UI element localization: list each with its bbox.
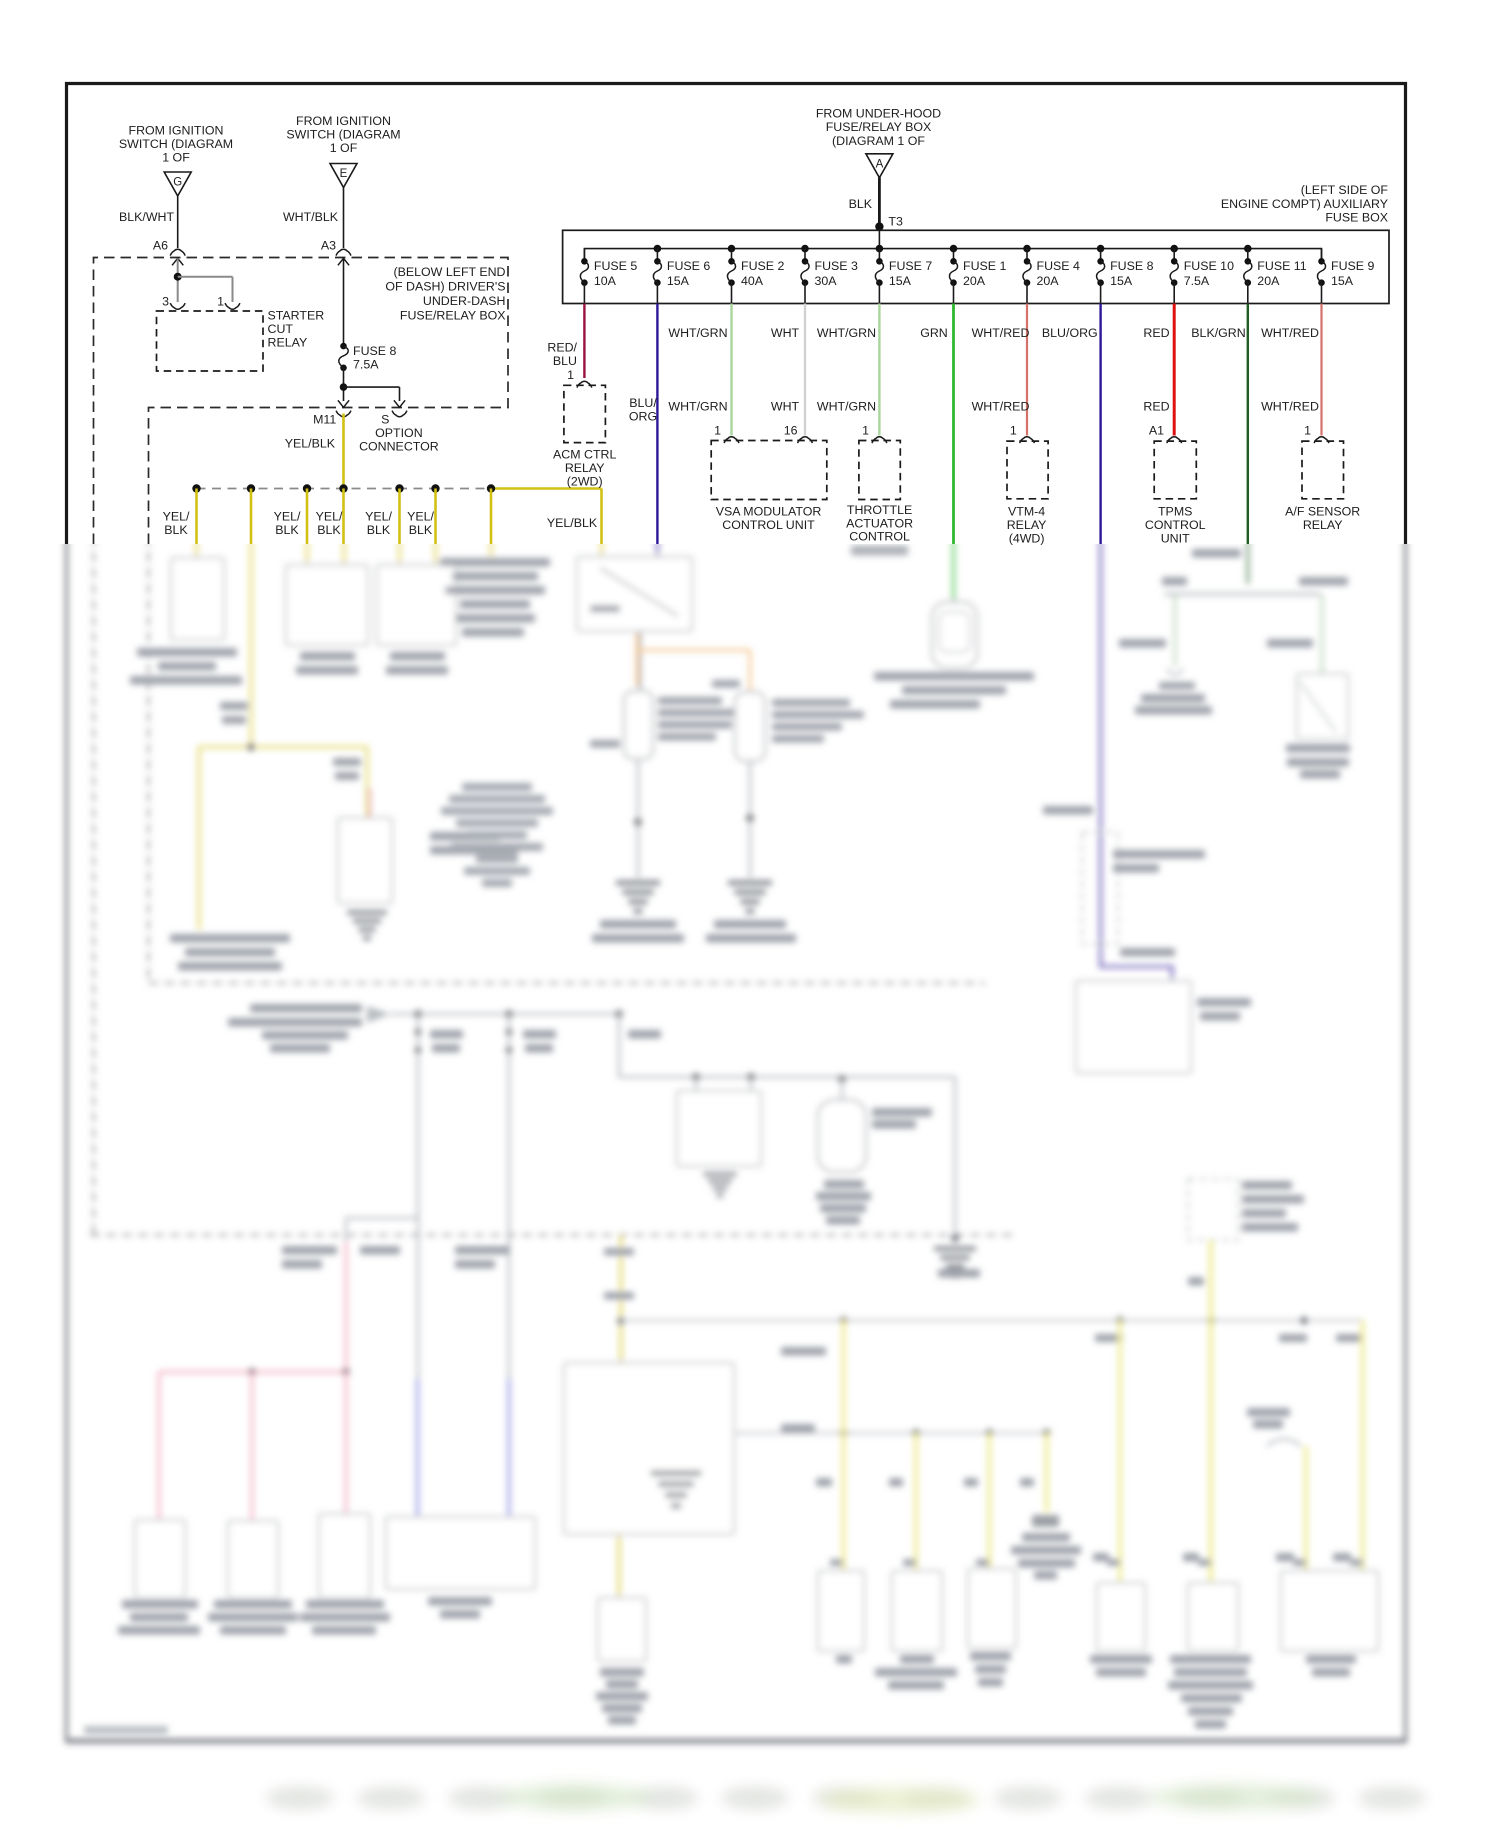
- svg-text:E: E: [340, 168, 348, 180]
- svg-text:FUSE/RELAY BOX: FUSE/RELAY BOX: [826, 120, 932, 134]
- svg-text:(DIAGRAM 1 OF: (DIAGRAM 1 OF: [832, 134, 925, 148]
- svg-text:YEL/BLK: YEL/BLK: [285, 437, 336, 451]
- svg-text:FUSE 1: FUSE 1: [963, 259, 1006, 273]
- svg-text:FUSE 4: FUSE 4: [1037, 259, 1080, 273]
- svg-text:20A: 20A: [963, 274, 986, 288]
- svg-text:1 OF: 1 OF: [330, 141, 358, 155]
- svg-text:A1: A1: [1149, 423, 1164, 437]
- svg-text:VSA MODULATOR: VSA MODULATOR: [716, 504, 822, 518]
- svg-text:WHT/RED: WHT/RED: [972, 400, 1030, 414]
- svg-text:1: 1: [862, 423, 869, 437]
- svg-text:TPMS: TPMS: [1158, 504, 1192, 518]
- svg-text:15A: 15A: [667, 274, 690, 288]
- svg-text:CONNECTOR: CONNECTOR: [359, 440, 439, 454]
- svg-text:YEL/: YEL/: [274, 509, 301, 523]
- svg-text:BLK: BLK: [409, 523, 433, 537]
- svg-text:BLK: BLK: [317, 523, 341, 537]
- svg-text:THROTTLE: THROTTLE: [847, 503, 912, 517]
- svg-text:A: A: [876, 158, 884, 170]
- svg-text:7.5A: 7.5A: [1184, 274, 1210, 288]
- svg-text:CONTROL UNIT: CONTROL UNIT: [722, 518, 815, 532]
- svg-text:STARTER: STARTER: [268, 309, 325, 323]
- svg-text:FUSE 8: FUSE 8: [1110, 259, 1153, 273]
- svg-text:FUSE 6: FUSE 6: [667, 259, 710, 273]
- svg-text:(4WD): (4WD): [1009, 531, 1045, 545]
- svg-text:G: G: [173, 177, 182, 189]
- svg-text:SWITCH (DIAGRAM: SWITCH (DIAGRAM: [286, 128, 400, 142]
- svg-text:1: 1: [1304, 423, 1311, 437]
- svg-text:RED/: RED/: [547, 341, 577, 355]
- svg-text:BLU: BLU: [553, 354, 577, 368]
- svg-text:FUSE 3: FUSE 3: [815, 259, 858, 273]
- svg-text:YEL/: YEL/: [407, 509, 434, 523]
- svg-text:FUSE 9: FUSE 9: [1331, 259, 1374, 273]
- svg-text:FROM UNDER-HOOD: FROM UNDER-HOOD: [816, 107, 941, 121]
- svg-text:BLK/WHT: BLK/WHT: [119, 210, 175, 224]
- svg-text:BLK: BLK: [367, 523, 391, 537]
- svg-text:WHT/GRN: WHT/GRN: [668, 326, 727, 340]
- svg-text:WHT: WHT: [771, 326, 800, 340]
- svg-text:FUSE 7: FUSE 7: [889, 259, 932, 273]
- svg-text:GRN: GRN: [920, 326, 948, 340]
- svg-text:3: 3: [162, 295, 169, 309]
- svg-text:YEL/: YEL/: [163, 509, 190, 523]
- svg-text:WHT/GRN: WHT/GRN: [817, 326, 876, 340]
- svg-text:ACM CTRL: ACM CTRL: [553, 447, 616, 461]
- svg-text:30A: 30A: [815, 274, 838, 288]
- svg-text:40A: 40A: [741, 274, 764, 288]
- svg-text:10A: 10A: [594, 274, 617, 288]
- svg-text:16: 16: [784, 423, 798, 437]
- svg-text:ACTUATOR: ACTUATOR: [846, 516, 913, 530]
- svg-text:WHT/RED: WHT/RED: [1261, 400, 1319, 414]
- svg-text:BLK: BLK: [164, 523, 188, 537]
- svg-text:CONTROL: CONTROL: [849, 530, 910, 544]
- svg-text:A3: A3: [321, 239, 336, 253]
- svg-text:20A: 20A: [1037, 274, 1060, 288]
- svg-text:UNDER-DASH: UNDER-DASH: [423, 294, 506, 308]
- svg-text:BLU/: BLU/: [629, 396, 657, 410]
- svg-text:(LEFT SIDE OF: (LEFT SIDE OF: [1301, 183, 1389, 197]
- svg-text:SWITCH (DIAGRAM: SWITCH (DIAGRAM: [119, 137, 233, 151]
- svg-text:FUSE BOX: FUSE BOX: [1325, 211, 1388, 225]
- svg-text:WHT/GRN: WHT/GRN: [668, 400, 727, 414]
- svg-text:FUSE 11: FUSE 11: [1257, 259, 1306, 273]
- svg-text:A/F SENSOR: A/F SENSOR: [1285, 504, 1360, 518]
- svg-text:15A: 15A: [889, 274, 912, 288]
- svg-text:15A: 15A: [1110, 274, 1133, 288]
- svg-text:ORG: ORG: [629, 410, 657, 424]
- svg-text:WHT/GRN: WHT/GRN: [817, 400, 876, 414]
- svg-text:1 OF: 1 OF: [162, 151, 190, 165]
- svg-text:RED: RED: [1143, 326, 1169, 340]
- svg-text:RELAY: RELAY: [1007, 518, 1047, 532]
- svg-text:BLK: BLK: [849, 197, 873, 211]
- svg-text:FUSE 5: FUSE 5: [594, 259, 637, 273]
- svg-text:WHT/BLK: WHT/BLK: [283, 210, 339, 224]
- svg-text:WHT/RED: WHT/RED: [1261, 326, 1319, 340]
- svg-text:YEL/: YEL/: [365, 509, 392, 523]
- svg-text:OF DASH) DRIVER'S: OF DASH) DRIVER'S: [385, 280, 505, 294]
- svg-text:BLK/GRN: BLK/GRN: [1191, 326, 1245, 340]
- svg-text:S: S: [381, 413, 389, 427]
- svg-text:VTM-4: VTM-4: [1008, 504, 1045, 518]
- svg-text:FUSE 2: FUSE 2: [741, 259, 784, 273]
- svg-text:FUSE 10: FUSE 10: [1184, 259, 1234, 273]
- svg-text:RELAY: RELAY: [565, 461, 605, 475]
- svg-text:CONTROL: CONTROL: [1145, 518, 1206, 532]
- svg-text:OPTION: OPTION: [375, 426, 423, 440]
- svg-text:WHT/RED: WHT/RED: [972, 326, 1030, 340]
- svg-text:WHT: WHT: [771, 400, 800, 414]
- svg-text:1: 1: [567, 368, 574, 382]
- svg-text:7.5A: 7.5A: [353, 358, 379, 372]
- svg-text:BLK: BLK: [275, 523, 299, 537]
- svg-text:ENGINE COMPT) AUXILIARY: ENGINE COMPT) AUXILIARY: [1221, 197, 1388, 211]
- svg-text:20A: 20A: [1257, 274, 1280, 288]
- svg-text:FROM IGNITION: FROM IGNITION: [129, 124, 224, 138]
- svg-text:A6: A6: [153, 239, 168, 253]
- svg-text:1: 1: [1010, 423, 1017, 437]
- svg-text:UNIT: UNIT: [1161, 531, 1190, 545]
- svg-text:YEL/: YEL/: [316, 509, 343, 523]
- svg-text:1: 1: [714, 423, 721, 437]
- svg-text:1: 1: [217, 295, 224, 309]
- svg-text:15A: 15A: [1331, 274, 1354, 288]
- svg-text:FUSE 8: FUSE 8: [353, 344, 396, 358]
- svg-text:(2WD): (2WD): [567, 474, 603, 488]
- svg-text:FUSE/RELAY BOX: FUSE/RELAY BOX: [400, 309, 506, 323]
- svg-text:(BELOW LEFT END: (BELOW LEFT END: [394, 265, 506, 279]
- svg-text:BLU/ORG: BLU/ORG: [1042, 326, 1098, 340]
- svg-text:T3: T3: [888, 215, 903, 229]
- svg-text:RELAY: RELAY: [268, 336, 308, 350]
- svg-text:CUT: CUT: [268, 322, 294, 336]
- svg-text:FROM IGNITION: FROM IGNITION: [296, 114, 391, 128]
- svg-text:RED: RED: [1143, 400, 1169, 414]
- svg-text:M11: M11: [313, 413, 336, 427]
- svg-text:RELAY: RELAY: [1303, 518, 1343, 532]
- svg-text:YEL/BLK: YEL/BLK: [547, 516, 598, 530]
